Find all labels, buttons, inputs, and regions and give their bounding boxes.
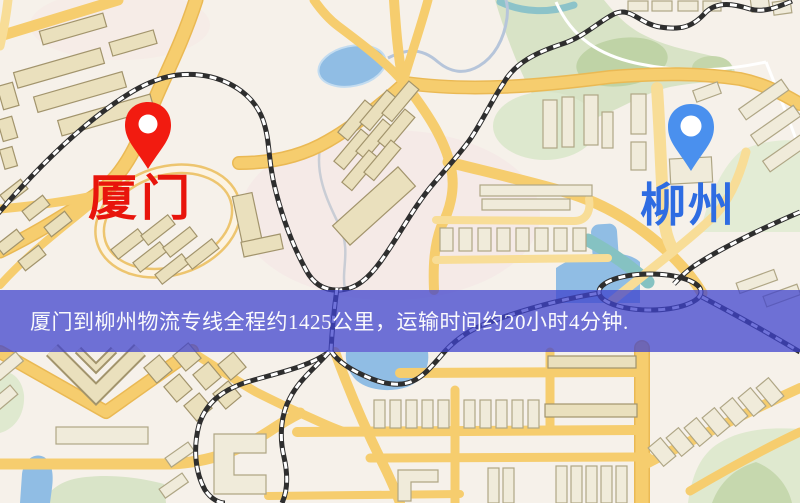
map-canvas (0, 0, 800, 503)
route-info-text: 厦门到柳州物流专线全程约1425公里，运输时间约20小时4分钟. (30, 306, 629, 336)
destination-city-label: 柳州 (640, 183, 736, 229)
origin-city-label: 厦门 (88, 174, 194, 223)
map: 厦门到柳州物流专线全程约1425公里，运输时间约20小时4分钟. 厦门 柳州 (0, 0, 800, 503)
route-info-banner: 厦门到柳州物流专线全程约1425公里，运输时间约20小时4分钟. (0, 290, 800, 352)
